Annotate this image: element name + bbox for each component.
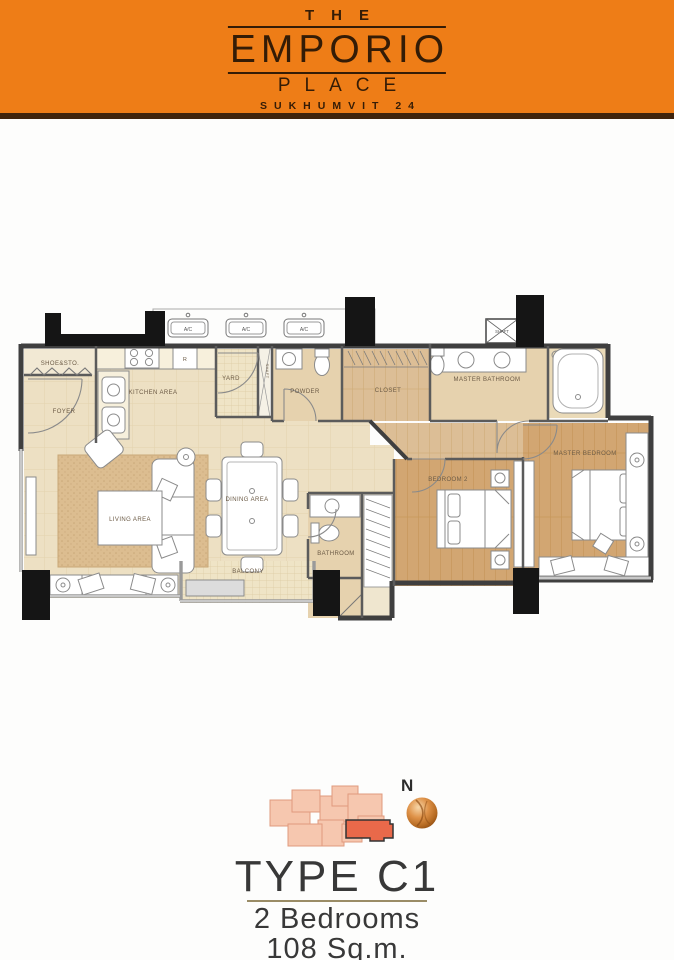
room-label-kitchen: KITCHEN AREA	[129, 390, 178, 396]
brand-subtitle: SUKHUMVIT 24	[225, 99, 449, 113]
room-label-closet: CLOSET	[375, 388, 401, 394]
ac-label-1: A/C	[184, 327, 193, 333]
shaft-box: SHAFT	[486, 319, 518, 343]
brochure-page: THE EMPORIO PLACE SUKHUMVIT 24	[0, 0, 674, 960]
shaft-strip-label: SHAFT	[265, 363, 270, 378]
room-label-living: LIVING AREA	[109, 517, 151, 523]
ac-label-3: A/C	[300, 327, 309, 333]
room-label-balcony: BALCONY	[232, 569, 263, 575]
unit-summary: TYPE C1 2 Bedrooms 108 Sq.m.	[0, 855, 674, 960]
brand-logo: THE EMPORIO PLACE SUKHUMVIT 24	[225, 7, 449, 113]
unit-bedrooms: 2 Bedrooms	[0, 904, 674, 934]
tv-bench-icon	[26, 477, 36, 555]
brand-name: EMPORIO	[225, 29, 449, 71]
logo-rule-bottom	[228, 72, 446, 74]
ac-label-2: A/C	[242, 327, 251, 333]
stove-icon	[125, 347, 159, 368]
floor-plan: A/C A/C A/C SHAFT	[0, 293, 674, 633]
unit-area: 108 Sq.m.	[0, 934, 674, 960]
room-label-master-bath: MASTER BATHROOM	[454, 377, 521, 383]
brand-header: THE EMPORIO PLACE SUKHUMVIT 24	[0, 0, 674, 119]
side-table-icon	[177, 448, 195, 466]
window-seat-master	[539, 556, 649, 576]
room-label-foyer: FOYER	[53, 409, 76, 415]
fridge-label: R	[183, 357, 187, 363]
room-label-dining: DINING AREA	[225, 497, 268, 503]
planter-icon	[186, 580, 244, 596]
keyplan-unit-highlight	[346, 820, 393, 841]
window-seat-right	[626, 433, 648, 565]
brand-place: PLACE	[225, 75, 449, 97]
brand-the: THE	[225, 7, 449, 25]
bathtub-icon	[553, 349, 603, 413]
room-label-bedroom2: BEDROOM 2	[428, 477, 468, 483]
room-label-yard: YARD	[222, 376, 240, 382]
ac-ledge: A/C A/C A/C	[153, 309, 375, 346]
north-sphere-icon	[403, 794, 441, 832]
room-label-shoe: SHOE&STO.	[41, 361, 80, 367]
unit-type-title: TYPE C1	[0, 855, 674, 899]
north-label: N	[401, 776, 414, 796]
window-seat-left	[50, 573, 178, 596]
room-label-master-bed: MASTER BEDROOM	[553, 451, 616, 457]
room-label-powder: POWDER	[290, 389, 320, 395]
room-label-bathroom: BATHROOM	[317, 551, 354, 557]
wardrobe-icon	[364, 495, 392, 587]
shaft-box-label: SHAFT	[495, 329, 509, 334]
